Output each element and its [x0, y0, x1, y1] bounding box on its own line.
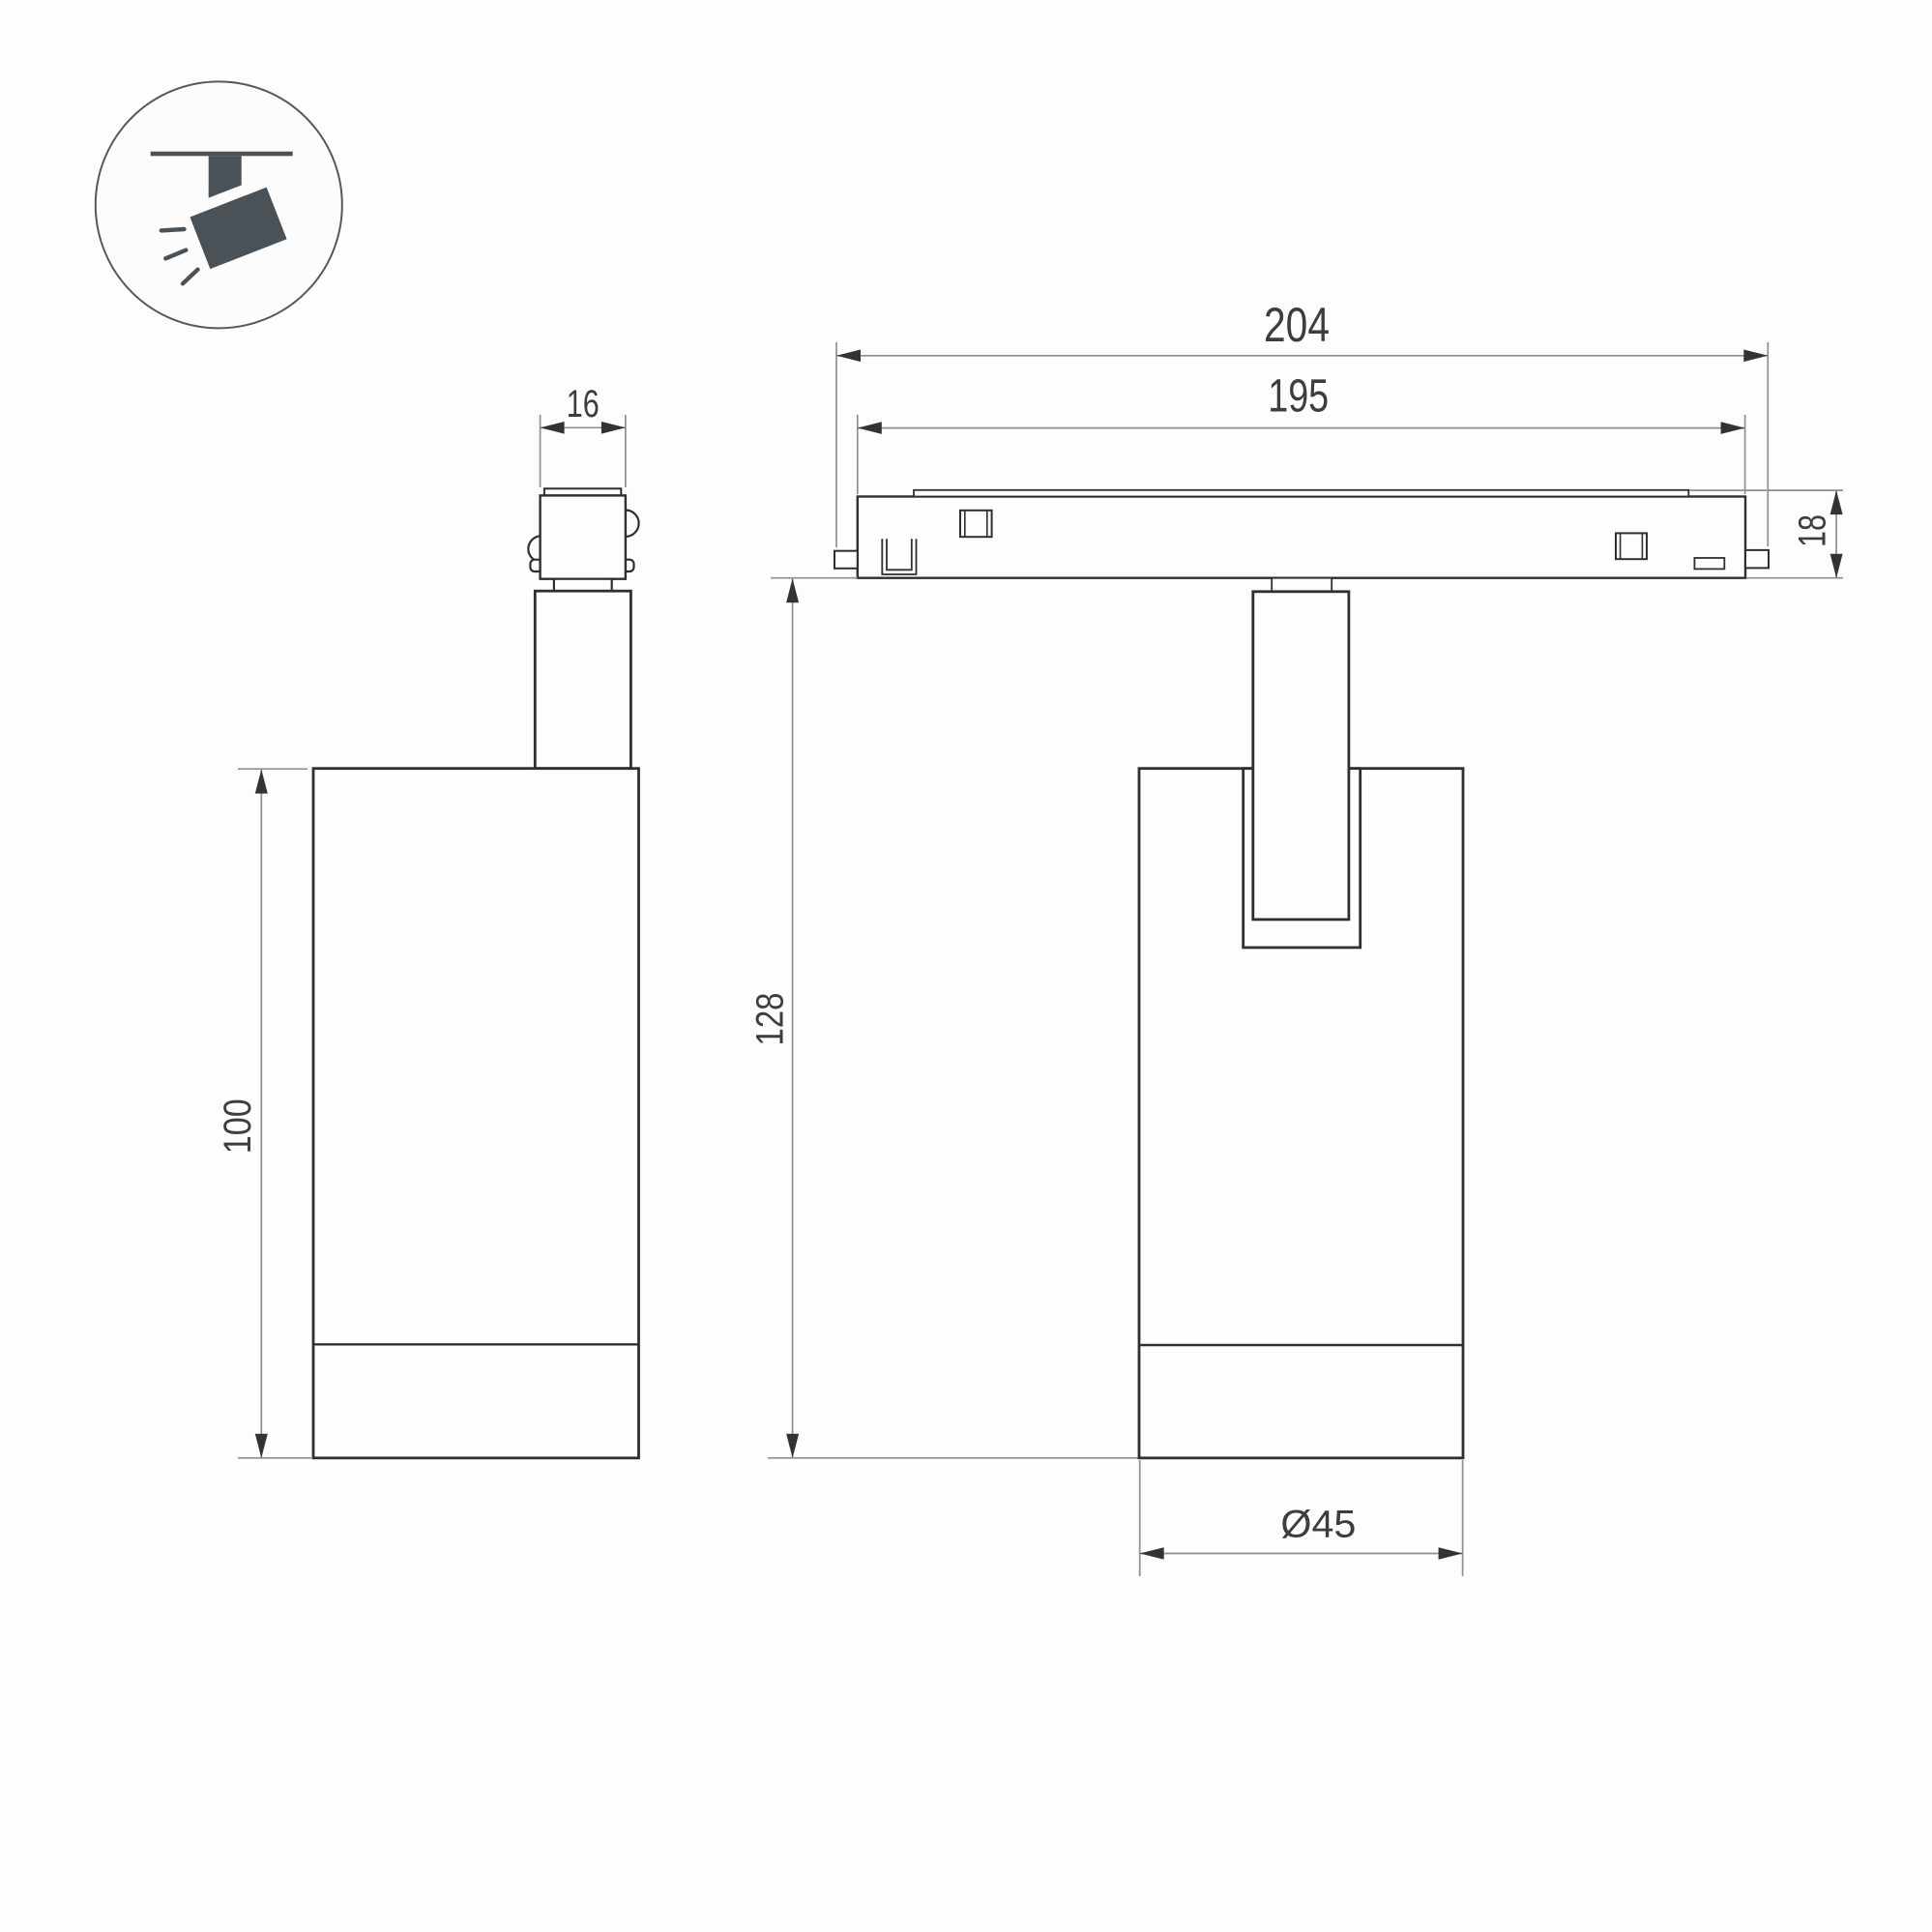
svg-text:100: 100 — [217, 1098, 259, 1154]
svg-text:204: 204 — [1264, 298, 1330, 352]
svg-text:128: 128 — [749, 993, 792, 1046]
svg-text:195: 195 — [1268, 371, 1329, 423]
svg-text:18: 18 — [1792, 514, 1834, 547]
svg-text:Ø45: Ø45 — [1280, 1504, 1356, 1546]
svg-text:16: 16 — [567, 383, 600, 425]
